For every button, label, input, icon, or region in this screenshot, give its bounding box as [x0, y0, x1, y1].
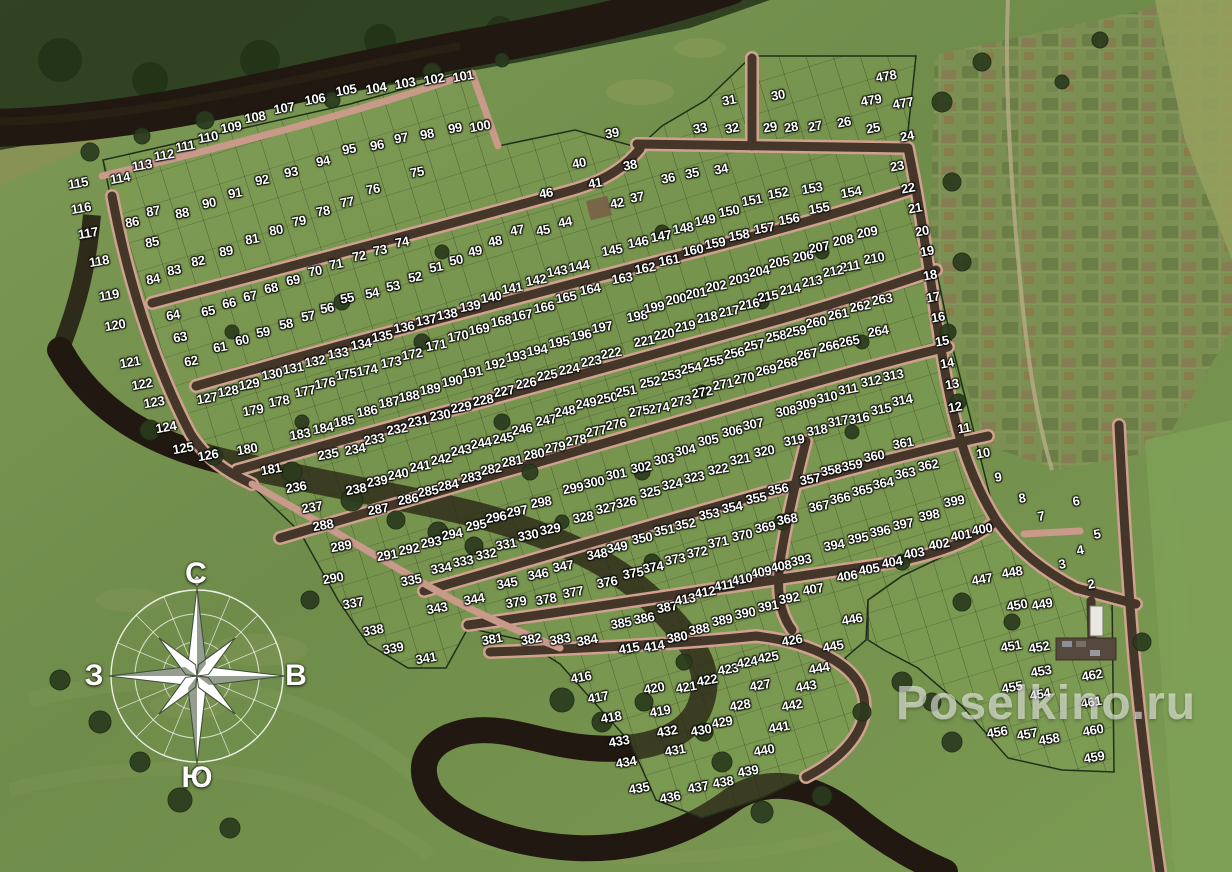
- plot-number-329[interactable]: 329: [539, 521, 562, 537]
- plot-number-59[interactable]: 59: [255, 324, 271, 339]
- plot-number-305[interactable]: 305: [697, 432, 720, 448]
- plot-number-105[interactable]: 105: [335, 82, 358, 98]
- plot-number-419[interactable]: 419: [649, 703, 672, 719]
- plot-number-229[interactable]: 229: [450, 399, 473, 415]
- plot-number-333[interactable]: 333: [452, 553, 475, 569]
- plot-number-128[interactable]: 128: [217, 383, 240, 399]
- plot-number-123[interactable]: 123: [143, 394, 166, 410]
- plot-number-255[interactable]: 255: [702, 353, 725, 369]
- plot-number-85[interactable]: 85: [144, 234, 160, 249]
- plot-number-405[interactable]: 405: [858, 561, 881, 577]
- plot-number-403[interactable]: 403: [903, 545, 926, 561]
- plot-number-137[interactable]: 137: [415, 312, 438, 328]
- plot-number-439[interactable]: 439: [737, 763, 760, 779]
- plot-number-65[interactable]: 65: [200, 303, 216, 318]
- plot-number-382[interactable]: 382: [520, 631, 543, 647]
- plot-number-383[interactable]: 383: [549, 631, 572, 647]
- plot-number-113[interactable]: 113: [131, 157, 153, 173]
- plot-number-240[interactable]: 240: [387, 466, 410, 482]
- plot-number-307[interactable]: 307: [742, 416, 765, 432]
- plot-number-217[interactable]: 217: [718, 303, 741, 319]
- plot-number-184[interactable]: 184: [312, 420, 335, 436]
- plot-number-34[interactable]: 34: [713, 161, 729, 176]
- plot-number-235[interactable]: 235: [317, 446, 340, 462]
- plot-number-354[interactable]: 354: [721, 499, 744, 515]
- plot-number-200[interactable]: 200: [665, 291, 688, 307]
- plot-number-231[interactable]: 231: [407, 413, 430, 429]
- plot-number-479[interactable]: 479: [860, 92, 883, 108]
- plot-number-56[interactable]: 56: [319, 300, 335, 315]
- plot-number-359[interactable]: 359: [841, 457, 864, 473]
- plot-number-306[interactable]: 306: [721, 423, 744, 439]
- plot-number-107[interactable]: 107: [273, 100, 296, 116]
- plot-number-190[interactable]: 190: [441, 373, 464, 389]
- plot-number-143[interactable]: 143: [546, 263, 569, 279]
- plot-number-66[interactable]: 66: [221, 295, 237, 310]
- plot-number-76[interactable]: 76: [365, 181, 381, 196]
- plot-number-433[interactable]: 433: [608, 733, 631, 749]
- plot-number-116[interactable]: 116: [70, 200, 92, 216]
- plot-number-290[interactable]: 290: [322, 570, 345, 586]
- plot-number-73[interactable]: 73: [372, 242, 388, 257]
- plot-number-373[interactable]: 373: [664, 551, 687, 567]
- plot-number-148[interactable]: 148: [672, 220, 695, 236]
- plot-number-163[interactable]: 163: [611, 270, 634, 286]
- plot-number-386[interactable]: 386: [633, 610, 656, 626]
- plot-number-349[interactable]: 349: [606, 539, 629, 555]
- plot-number-425[interactable]: 425: [757, 649, 780, 665]
- plot-number-223[interactable]: 223: [580, 353, 603, 369]
- plot-number-247[interactable]: 247: [535, 412, 558, 428]
- plot-number-202[interactable]: 202: [705, 278, 728, 294]
- plot-number-397[interactable]: 397: [892, 516, 915, 532]
- plot-number-147[interactable]: 147: [650, 228, 673, 244]
- plot-number-265[interactable]: 265: [838, 333, 861, 349]
- plot-number-244[interactable]: 244: [470, 435, 493, 451]
- plot-number-232[interactable]: 232: [386, 421, 409, 437]
- plot-number-303[interactable]: 303: [653, 451, 676, 467]
- plot-number-32[interactable]: 32: [724, 120, 740, 135]
- plot-number-97[interactable]: 97: [393, 130, 409, 145]
- plot-number-127[interactable]: 127: [196, 390, 219, 406]
- plot-number-446[interactable]: 446: [841, 611, 864, 627]
- plot-number-377[interactable]: 377: [562, 584, 585, 600]
- plot-number-395[interactable]: 395: [847, 530, 870, 546]
- plot-number-203[interactable]: 203: [728, 271, 751, 287]
- plot-number-258[interactable]: 258: [765, 328, 788, 344]
- plot-number-249[interactable]: 249: [575, 395, 598, 411]
- plot-number-366[interactable]: 366: [829, 490, 852, 506]
- plot-number-310[interactable]: 310: [816, 389, 839, 405]
- plot-number-141[interactable]: 141: [501, 280, 524, 296]
- plot-number-81[interactable]: 81: [244, 231, 260, 246]
- plot-number-35[interactable]: 35: [684, 165, 700, 180]
- plot-number-352[interactable]: 352: [674, 516, 697, 532]
- plot-number-422[interactable]: 422: [696, 672, 719, 688]
- plot-number-118[interactable]: 118: [88, 253, 110, 269]
- plot-number-181[interactable]: 181: [260, 461, 283, 477]
- plot-number-408[interactable]: 408: [770, 558, 793, 574]
- plot-number-277[interactable]: 277: [585, 423, 608, 439]
- plot-number-378[interactable]: 378: [535, 591, 558, 607]
- plot-number-10[interactable]: 10: [975, 445, 991, 460]
- plot-number-447[interactable]: 447: [971, 571, 994, 587]
- plot-number-173[interactable]: 173: [380, 354, 403, 370]
- plot-number-315[interactable]: 315: [870, 401, 893, 417]
- plot-number-438[interactable]: 438: [712, 774, 735, 790]
- plot-number-311[interactable]: 311: [837, 381, 859, 397]
- plot-number-252[interactable]: 252: [639, 374, 662, 390]
- plot-number-384[interactable]: 384: [576, 632, 599, 648]
- plot-number-26[interactable]: 26: [836, 114, 852, 129]
- plot-number-157[interactable]: 157: [753, 220, 776, 236]
- plot-number-48[interactable]: 48: [487, 233, 503, 248]
- plot-number-416[interactable]: 416: [570, 669, 593, 685]
- plot-number-17[interactable]: 17: [925, 289, 941, 304]
- plot-number-248[interactable]: 248: [554, 403, 577, 419]
- plot-number-213[interactable]: 213: [801, 273, 824, 289]
- plot-number-161[interactable]: 161: [658, 252, 681, 268]
- plot-number-241[interactable]: 241: [409, 458, 432, 474]
- plot-number-390[interactable]: 390: [734, 605, 757, 621]
- plot-number-234[interactable]: 234: [344, 441, 367, 457]
- plot-number-334[interactable]: 334: [430, 560, 453, 576]
- plot-number-78[interactable]: 78: [315, 203, 331, 218]
- plot-number-243[interactable]: 243: [450, 442, 473, 458]
- plot-number-37[interactable]: 37: [629, 189, 645, 204]
- plot-number-449[interactable]: 449: [1031, 596, 1054, 612]
- plot-number-351[interactable]: 351: [653, 522, 676, 538]
- plot-number-393[interactable]: 393: [790, 552, 813, 568]
- plot-number-124[interactable]: 124: [155, 419, 178, 435]
- plot-number-358[interactable]: 358: [820, 462, 843, 478]
- plot-number-117[interactable]: 117: [77, 225, 99, 241]
- plot-number-25[interactable]: 25: [865, 120, 881, 135]
- plot-number-67[interactable]: 67: [242, 288, 258, 303]
- plot-number-135[interactable]: 135: [371, 328, 394, 344]
- plot-number-280[interactable]: 280: [523, 446, 546, 462]
- plot-number-445[interactable]: 445: [822, 638, 845, 654]
- plot-number-268[interactable]: 268: [776, 355, 799, 371]
- plot-number-93[interactable]: 93: [283, 164, 299, 179]
- plot-number-379[interactable]: 379: [505, 594, 528, 610]
- plot-number-406[interactable]: 406: [836, 568, 859, 584]
- plot-number-185[interactable]: 185: [333, 413, 356, 429]
- plot-number-338[interactable]: 338: [362, 622, 385, 638]
- plot-number-327[interactable]: 327: [595, 500, 618, 516]
- plot-number-114[interactable]: 114: [109, 170, 131, 186]
- plot-number-375[interactable]: 375: [622, 565, 645, 581]
- plot-number-80[interactable]: 80: [268, 222, 284, 237]
- plot-number-245[interactable]: 245: [492, 430, 515, 446]
- plot-number-204[interactable]: 204: [748, 263, 771, 279]
- plot-number-360[interactable]: 360: [863, 448, 886, 464]
- plot-number-299[interactable]: 299: [562, 480, 585, 496]
- plot-number-295[interactable]: 295: [465, 517, 488, 533]
- plot-number-323[interactable]: 323: [683, 469, 706, 485]
- plot-number-218[interactable]: 218: [696, 309, 719, 325]
- plot-number-54[interactable]: 54: [364, 285, 380, 300]
- plot-number-325[interactable]: 325: [639, 484, 662, 500]
- plot-number-38[interactable]: 38: [622, 157, 638, 172]
- plot-number-225[interactable]: 225: [536, 367, 559, 383]
- plot-number-199[interactable]: 199: [643, 299, 666, 315]
- plot-number-401[interactable]: 401: [950, 527, 973, 543]
- plot-number-427[interactable]: 427: [749, 677, 772, 693]
- plot-number-31[interactable]: 31: [721, 92, 737, 107]
- plot-number-164[interactable]: 164: [579, 281, 602, 297]
- plot-number-172[interactable]: 172: [401, 346, 424, 362]
- plot-number-259[interactable]: 259: [785, 323, 808, 339]
- plot-number-414[interactable]: 414: [643, 638, 666, 654]
- plot-number-84[interactable]: 84: [145, 271, 161, 286]
- plot-number-267[interactable]: 267: [796, 346, 819, 362]
- plot-number-300[interactable]: 300: [583, 474, 606, 490]
- plot-number-171[interactable]: 171: [425, 337, 448, 353]
- plot-number-30[interactable]: 30: [770, 87, 786, 102]
- plot-number-77[interactable]: 77: [339, 194, 355, 209]
- plot-number-126[interactable]: 126: [197, 447, 220, 463]
- plot-number-208[interactable]: 208: [832, 232, 855, 248]
- plot-number-320[interactable]: 320: [753, 443, 776, 459]
- plot-number-111[interactable]: 111: [174, 138, 195, 154]
- plot-number-165[interactable]: 165: [555, 289, 578, 305]
- plot-number-11[interactable]: 11: [956, 420, 971, 435]
- plot-number-167[interactable]: 167: [511, 307, 534, 323]
- plot-number-51[interactable]: 51: [428, 259, 444, 274]
- plot-number-16[interactable]: 16: [930, 309, 946, 324]
- plot-number-195[interactable]: 195: [548, 334, 571, 350]
- plot-number-287[interactable]: 287: [367, 501, 390, 517]
- plot-number-444[interactable]: 444: [808, 660, 831, 676]
- plot-number-389[interactable]: 389: [711, 612, 734, 628]
- plot-number-374[interactable]: 374: [642, 559, 665, 575]
- plot-number-278[interactable]: 278: [565, 432, 588, 448]
- plot-number-429[interactable]: 429: [711, 714, 734, 730]
- plot-number-177[interactable]: 177: [294, 383, 317, 399]
- plot-number-376[interactable]: 376: [596, 574, 619, 590]
- plot-number-191[interactable]: 191: [461, 364, 484, 380]
- plot-number-103[interactable]: 103: [394, 75, 417, 91]
- plot-number-284[interactable]: 284: [437, 477, 460, 493]
- plot-number-237[interactable]: 237: [301, 499, 324, 515]
- plot-number-104[interactable]: 104: [365, 80, 388, 96]
- plot-number-388[interactable]: 388: [688, 621, 711, 637]
- plot-number-459[interactable]: 459: [1083, 749, 1106, 765]
- plot-number-23[interactable]: 23: [889, 158, 905, 173]
- plot-number-74[interactable]: 74: [394, 234, 410, 249]
- plot-number-13[interactable]: 13: [944, 376, 960, 391]
- plot-number-88[interactable]: 88: [174, 205, 190, 220]
- plot-number-256[interactable]: 256: [723, 345, 746, 361]
- plot-number-319[interactable]: 319: [783, 432, 806, 448]
- plot-number-270[interactable]: 270: [733, 370, 756, 386]
- plot-number-219[interactable]: 219: [674, 318, 697, 334]
- plot-number-149[interactable]: 149: [694, 212, 717, 228]
- plot-number-146[interactable]: 146: [627, 234, 650, 250]
- plot-number-63[interactable]: 63: [172, 329, 188, 344]
- plot-number-291[interactable]: 291: [376, 547, 399, 563]
- plot-number-125[interactable]: 125: [172, 440, 195, 456]
- plot-number-12[interactable]: 12: [947, 399, 963, 414]
- plot-number-183[interactable]: 183: [289, 426, 312, 442]
- plot-number-36[interactable]: 36: [660, 170, 676, 185]
- plot-number-431[interactable]: 431: [664, 742, 687, 758]
- plot-number-158[interactable]: 158: [728, 227, 751, 243]
- plot-number-246[interactable]: 246: [511, 421, 534, 437]
- plot-number-396[interactable]: 396: [869, 523, 892, 539]
- plot-number-120[interactable]: 120: [104, 317, 127, 333]
- plot-number-434[interactable]: 434: [615, 754, 638, 770]
- plot-number-385[interactable]: 385: [610, 615, 633, 631]
- plot-number-152[interactable]: 152: [767, 185, 790, 201]
- plot-number-309[interactable]: 309: [795, 396, 818, 412]
- plot-number-370[interactable]: 370: [731, 527, 754, 543]
- plot-number-238[interactable]: 238: [345, 481, 368, 497]
- plot-number-159[interactable]: 159: [704, 235, 727, 251]
- plot-number-75[interactable]: 75: [409, 164, 425, 179]
- plot-number-294[interactable]: 294: [441, 526, 464, 542]
- plot-number-3[interactable]: 3: [1057, 557, 1066, 571]
- plot-number-420[interactable]: 420: [643, 680, 666, 696]
- plot-number-83[interactable]: 83: [166, 262, 182, 277]
- plot-number-371[interactable]: 371: [707, 534, 730, 550]
- plot-number-328[interactable]: 328: [572, 509, 595, 525]
- plot-number-50[interactable]: 50: [448, 252, 464, 267]
- plot-number-293[interactable]: 293: [420, 534, 443, 550]
- plot-number-40[interactable]: 40: [571, 155, 587, 170]
- plot-number-391[interactable]: 391: [757, 598, 780, 614]
- plot-number-134[interactable]: 134: [350, 336, 373, 352]
- plot-number-64[interactable]: 64: [165, 307, 181, 322]
- plot-number-27[interactable]: 27: [807, 118, 823, 133]
- plot-number-330[interactable]: 330: [517, 527, 540, 543]
- plot-number-68[interactable]: 68: [263, 280, 279, 295]
- plot-number-448[interactable]: 448: [1001, 564, 1024, 580]
- plot-number-44[interactable]: 44: [557, 214, 573, 229]
- plot-number-216[interactable]: 216: [738, 296, 761, 312]
- plot-number-365[interactable]: 365: [851, 482, 874, 498]
- plot-number-286[interactable]: 286: [397, 491, 420, 507]
- plot-number-129[interactable]: 129: [238, 376, 261, 392]
- plot-number-411[interactable]: 411: [713, 577, 735, 593]
- plot-number-404[interactable]: 404: [881, 554, 904, 570]
- plot-number-91[interactable]: 91: [227, 185, 243, 200]
- plot-number-18[interactable]: 18: [922, 267, 938, 282]
- plot-number-260[interactable]: 260: [805, 314, 828, 330]
- plot-number-304[interactable]: 304: [674, 442, 697, 458]
- plot-number-276[interactable]: 276: [605, 416, 628, 432]
- plot-number-156[interactable]: 156: [778, 211, 801, 227]
- plot-number-412[interactable]: 412: [694, 584, 717, 600]
- plot-number-264[interactable]: 264: [867, 323, 890, 339]
- plot-number-160[interactable]: 160: [682, 242, 705, 258]
- plot-number-443[interactable]: 443: [795, 678, 818, 694]
- plot-number-281[interactable]: 281: [501, 453, 524, 469]
- plot-number-94[interactable]: 94: [315, 153, 331, 168]
- plot-number-364[interactable]: 364: [872, 475, 895, 491]
- plot-number-132[interactable]: 132: [304, 353, 327, 369]
- plot-number-381[interactable]: 381: [481, 631, 504, 647]
- plot-number-86[interactable]: 86: [124, 214, 140, 229]
- plot-number-57[interactable]: 57: [300, 308, 316, 323]
- plot-number-418[interactable]: 418: [600, 709, 623, 725]
- plot-number-47[interactable]: 47: [509, 222, 525, 237]
- plot-number-169[interactable]: 169: [468, 321, 491, 337]
- plot-number-344[interactable]: 344: [463, 591, 486, 607]
- plot-number-46[interactable]: 46: [538, 185, 554, 200]
- plot-number-176[interactable]: 176: [314, 375, 337, 391]
- plot-number-52[interactable]: 52: [407, 269, 423, 284]
- plot-number-151[interactable]: 151: [741, 192, 764, 208]
- plot-number-49[interactable]: 49: [467, 243, 483, 258]
- plot-number-302[interactable]: 302: [630, 459, 653, 475]
- plot-number-226[interactable]: 226: [515, 375, 538, 391]
- plot-number-186[interactable]: 186: [356, 403, 379, 419]
- plot-number-72[interactable]: 72: [351, 248, 367, 263]
- plot-number-322[interactable]: 322: [707, 461, 730, 477]
- plot-number-362[interactable]: 362: [917, 457, 940, 473]
- plot-number-101[interactable]: 101: [452, 68, 475, 84]
- plot-number-209[interactable]: 209: [856, 224, 879, 240]
- plot-number-437[interactable]: 437: [687, 779, 710, 795]
- plot-number-154[interactable]: 154: [840, 184, 863, 200]
- plot-number-24[interactable]: 24: [899, 128, 915, 143]
- plot-number-356[interactable]: 356: [767, 481, 790, 497]
- plot-number-79[interactable]: 79: [291, 213, 307, 228]
- plot-number-227[interactable]: 227: [493, 383, 516, 399]
- plot-number-45[interactable]: 45: [535, 222, 551, 237]
- plot-number-289[interactable]: 289: [330, 538, 353, 554]
- plot-number-189[interactable]: 189: [419, 381, 442, 397]
- plot-number-133[interactable]: 133: [327, 345, 350, 361]
- plot-number-140[interactable]: 140: [480, 289, 503, 305]
- plot-number-55[interactable]: 55: [339, 290, 355, 305]
- plot-number-413[interactable]: 413: [674, 591, 697, 607]
- plot-number-432[interactable]: 432: [656, 723, 679, 739]
- plot-number-142[interactable]: 142: [525, 272, 548, 288]
- plot-number-210[interactable]: 210: [863, 250, 886, 266]
- plot-number-452[interactable]: 452: [1028, 639, 1051, 655]
- plot-number-350[interactable]: 350: [631, 530, 654, 546]
- plot-number-207[interactable]: 207: [808, 239, 831, 255]
- plot-number-33[interactable]: 33: [692, 120, 708, 135]
- plot-number-41[interactable]: 41: [587, 175, 603, 190]
- plot-number-144[interactable]: 144: [568, 258, 591, 274]
- plot-number-168[interactable]: 168: [490, 313, 513, 329]
- plot-number-269[interactable]: 269: [755, 362, 778, 378]
- plot-number-242[interactable]: 242: [430, 451, 453, 467]
- plot-number-313[interactable]: 313: [882, 367, 905, 383]
- plot-number-407[interactable]: 407: [802, 581, 825, 597]
- plot-number-21[interactable]: 21: [907, 200, 923, 215]
- plot-number-424[interactable]: 424: [736, 654, 759, 670]
- plot-number-106[interactable]: 106: [304, 91, 327, 107]
- plot-number-170[interactable]: 170: [447, 328, 470, 344]
- plot-number-122[interactable]: 122: [131, 376, 154, 392]
- plot-number-451[interactable]: 451: [1000, 638, 1023, 654]
- plot-number-53[interactable]: 53: [385, 278, 401, 293]
- plot-number-331[interactable]: 331: [495, 536, 518, 552]
- plot-number-60[interactable]: 60: [234, 332, 250, 347]
- plot-number-326[interactable]: 326: [615, 494, 638, 510]
- plot-number-87[interactable]: 87: [145, 203, 161, 218]
- plot-number-477[interactable]: 477: [892, 95, 915, 111]
- plot-number-95[interactable]: 95: [341, 141, 357, 156]
- plot-number-335[interactable]: 335: [400, 572, 423, 588]
- plot-number-215[interactable]: 215: [757, 288, 780, 304]
- plot-number-392[interactable]: 392: [778, 590, 801, 606]
